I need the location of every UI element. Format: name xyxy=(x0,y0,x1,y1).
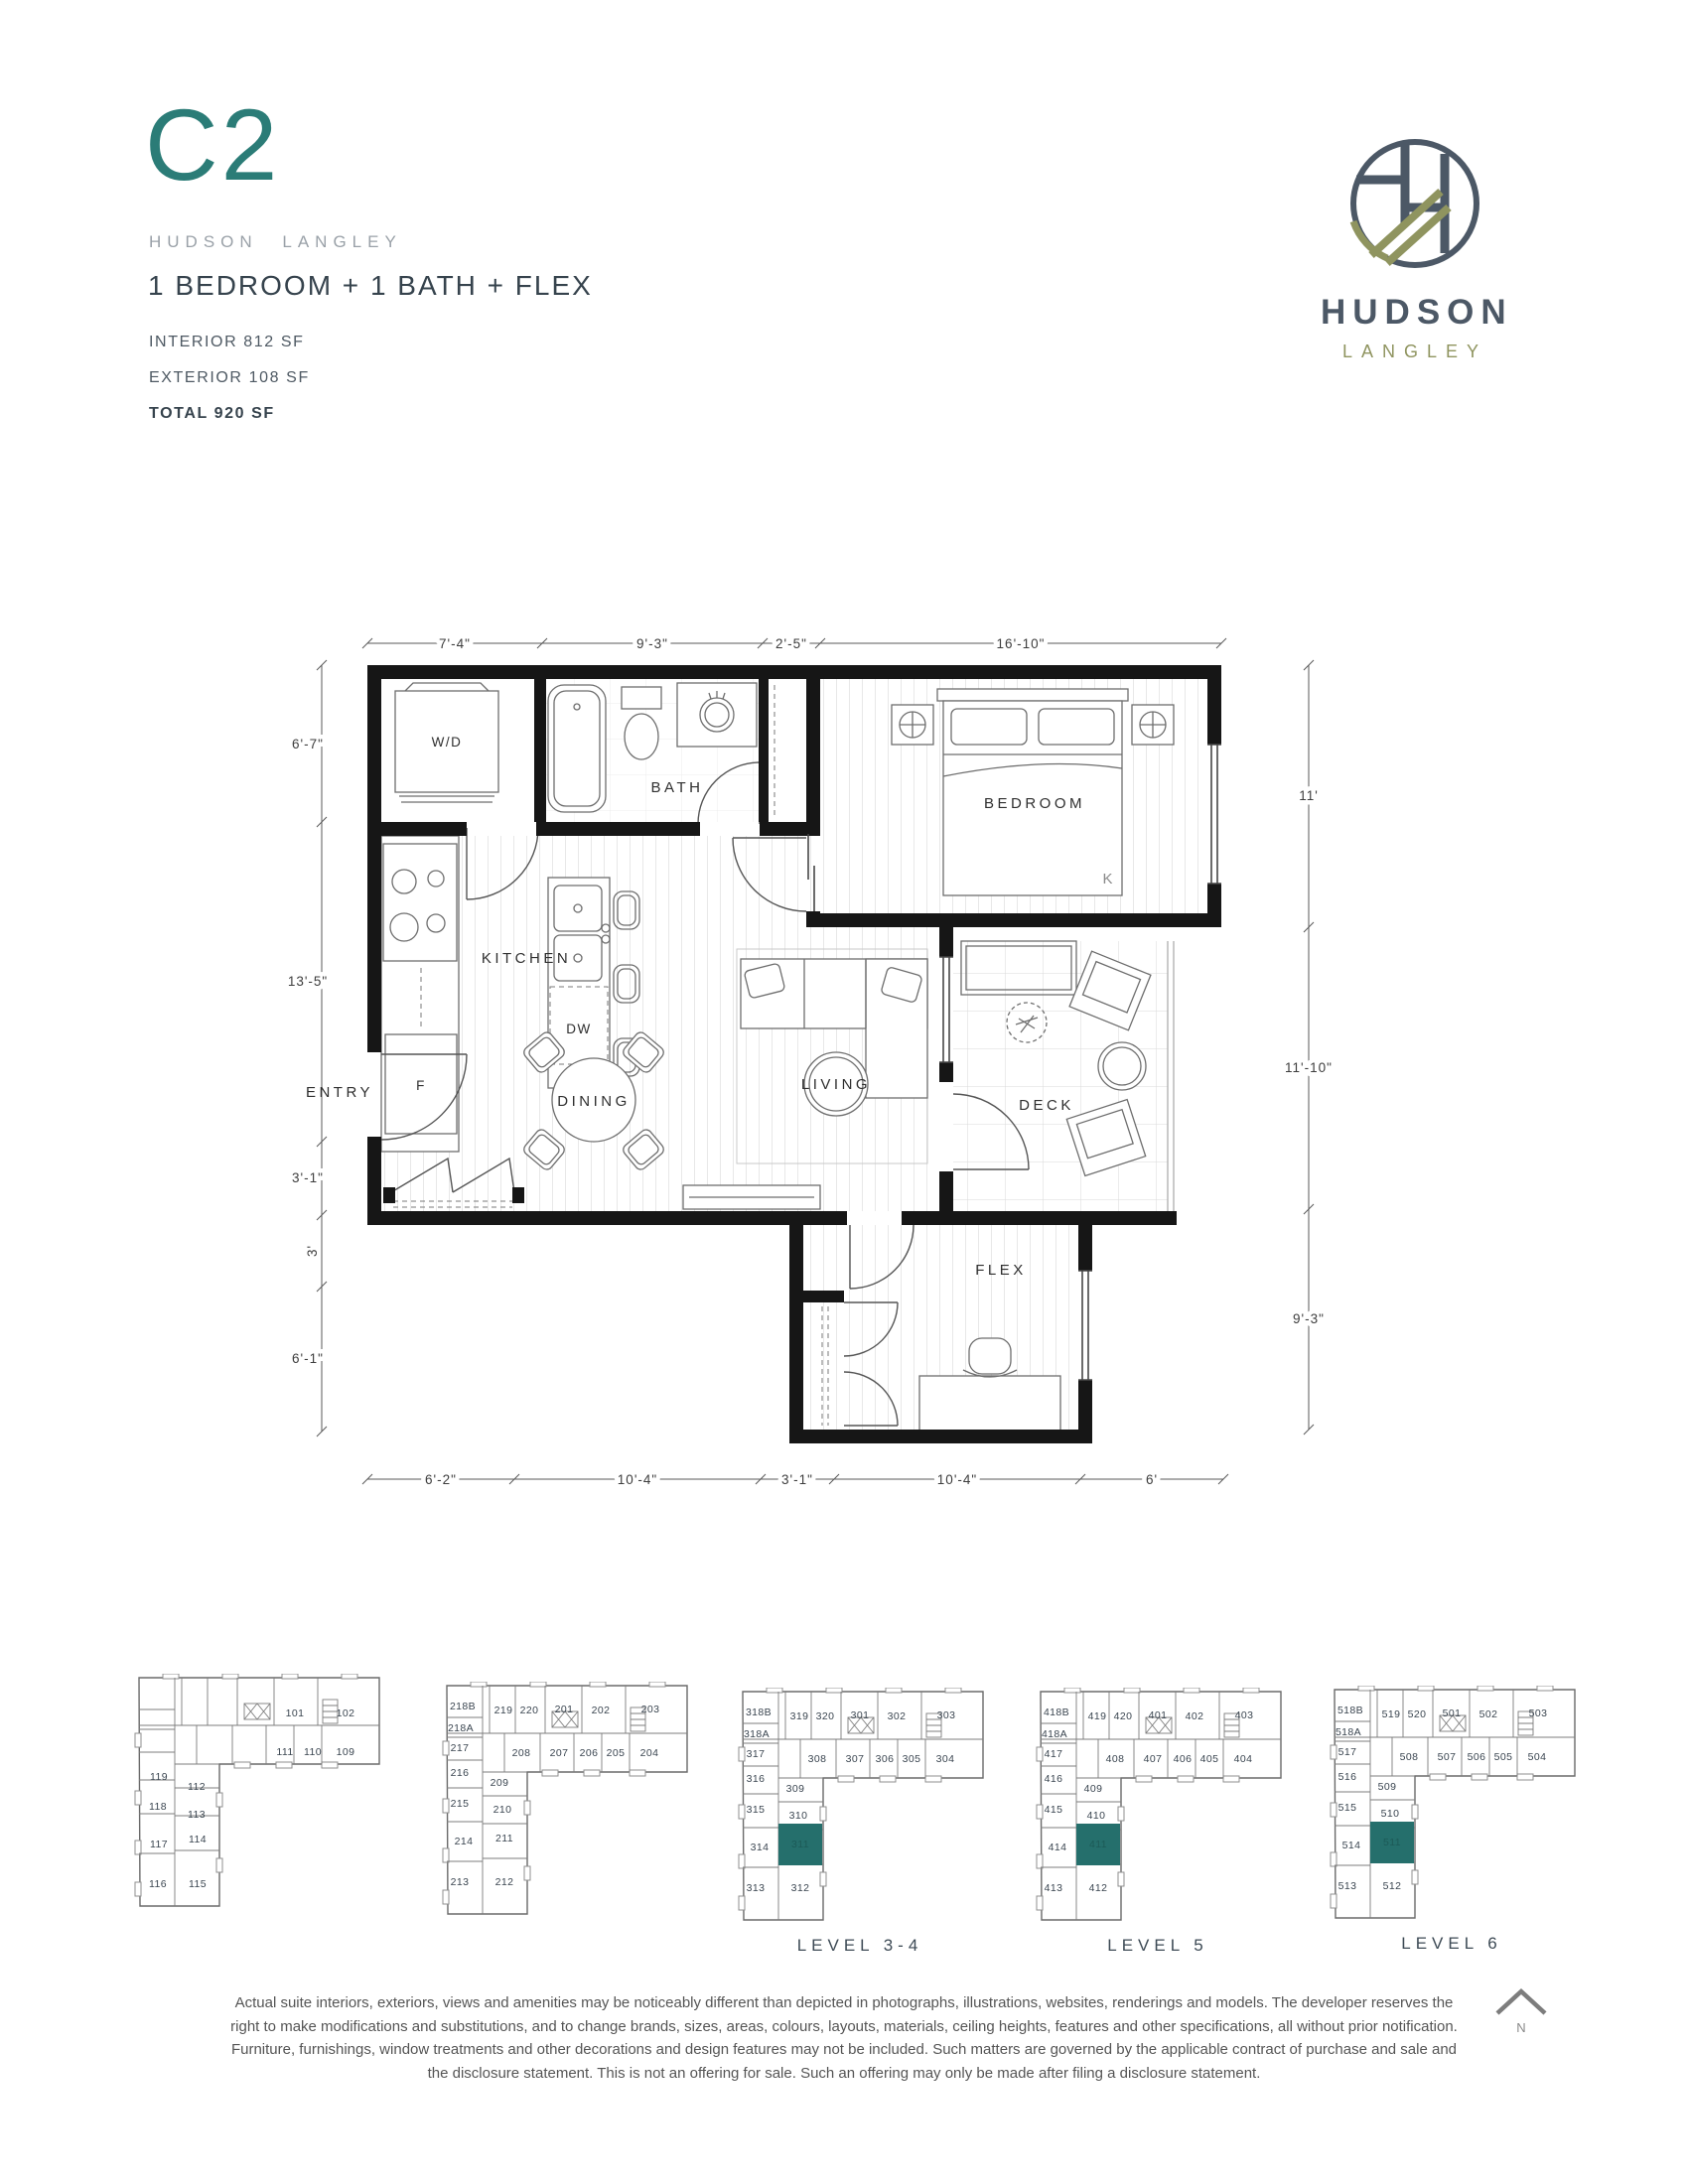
keyplan-units: 518B519520501502503518A51751650850750650… xyxy=(1323,1686,1581,1919)
dim-right-3: 9'-3" xyxy=(1293,1311,1325,1326)
logo-monogram-icon xyxy=(1340,129,1489,278)
keyplan-unit-number: 212 xyxy=(495,1876,514,1888)
keyplan-unit-number: 116 xyxy=(149,1878,167,1890)
keyplan-unit-number: 518A xyxy=(1336,1726,1361,1738)
keyplan-unit-number: 315 xyxy=(747,1804,766,1816)
keyplan-unit-number: 408 xyxy=(1106,1753,1125,1765)
keyplan-unit-number: 509 xyxy=(1378,1781,1397,1793)
keyplan-unit-number: 319 xyxy=(790,1710,809,1722)
keyplan-unit-number: 301 xyxy=(851,1709,870,1721)
keyplan-unit-number: 420 xyxy=(1114,1710,1133,1722)
keyplan-unit-number: 308 xyxy=(808,1753,827,1765)
keyplan-unit-number: 307 xyxy=(846,1753,865,1765)
disclaimer-line: Furniture, furnishings, window treatment… xyxy=(169,2038,1519,2062)
dim-bottom-2: 10'-4" xyxy=(618,1472,657,1487)
keyplan-unit-number: 303 xyxy=(937,1709,956,1721)
dim-top-4: 16'-10" xyxy=(997,636,1046,651)
keyplan-unit-number: 213 xyxy=(451,1876,470,1888)
keyplan-unit-number: 515 xyxy=(1338,1802,1357,1814)
keyplan-unit-number: 109 xyxy=(337,1746,355,1758)
label-dishwasher: DW xyxy=(566,1022,592,1036)
keyplan-unit-number: 208 xyxy=(512,1747,531,1759)
keyplan-unit-number: 520 xyxy=(1408,1708,1427,1720)
dim-top-2: 9'-3" xyxy=(636,636,668,651)
keyplan-unit-number: 304 xyxy=(936,1753,955,1765)
keyplan-unit-number: 211 xyxy=(495,1833,513,1844)
keyplan-unit-number: 114 xyxy=(189,1834,207,1845)
keyplan-unit-number: 410 xyxy=(1087,1810,1106,1822)
keyplan-unit-number: 318B xyxy=(746,1706,772,1718)
keyplan-unit-number: 512 xyxy=(1383,1880,1402,1892)
label-kitchen: KITCHEN xyxy=(482,950,571,967)
keyplan-unit-number: 406 xyxy=(1174,1753,1193,1765)
dim-bottom-1: 6'-2" xyxy=(425,1472,457,1487)
keyplan-unit-number: 413 xyxy=(1045,1882,1063,1894)
keyplan-unit-number: 302 xyxy=(888,1710,907,1722)
keyplan-units: 318B319320301302303318A31730830730630530… xyxy=(731,1688,989,1921)
keyplan-unit-number: 506 xyxy=(1468,1751,1486,1763)
dim-left-3: 3'-1" xyxy=(292,1170,324,1185)
keyplan-unit-number: 502 xyxy=(1479,1708,1498,1720)
keyplan-unit-number: 305 xyxy=(903,1753,921,1765)
hudson-langley-logo: HUDSON LANGLEY xyxy=(1321,129,1509,362)
label-dining: DINING xyxy=(557,1093,631,1110)
keyplan-unit-number: 513 xyxy=(1338,1880,1357,1892)
north-indicator: N xyxy=(1487,1983,1555,2035)
keyplan-unit-number: 117 xyxy=(150,1839,168,1850)
keyplan-unit-number: 517 xyxy=(1338,1746,1357,1758)
keyplan-unit-number: 118 xyxy=(149,1801,167,1813)
label-living: LIVING xyxy=(801,1076,871,1093)
keyplan-unit-number: 418B xyxy=(1044,1706,1069,1718)
label-washer-dryer: W/D xyxy=(432,735,463,750)
label-king-bed: K xyxy=(1102,871,1113,887)
label-deck: DECK xyxy=(1019,1097,1074,1114)
keyplan-unit-number: 314 xyxy=(751,1842,770,1853)
keyplan-unit-number: 206 xyxy=(580,1747,599,1759)
keyplan-unit-number: 205 xyxy=(607,1747,626,1759)
keyplan-level-3-4: 318B319320301302303318A31730830730630530… xyxy=(731,1688,989,1921)
keyplan-unit-number: 409 xyxy=(1084,1783,1103,1795)
keyplan-unit-number: 316 xyxy=(747,1773,766,1785)
disclaimer: Actual suite interiors, exteriors, views… xyxy=(169,1991,1519,2085)
dim-right-2: 11'-10" xyxy=(1285,1060,1333,1075)
dim-bottom-5: 6' xyxy=(1146,1472,1158,1487)
keyplan-unit-number: 514 xyxy=(1342,1840,1361,1851)
keyplan-unit-number: 110 xyxy=(304,1746,322,1758)
keyplan-unit-number: 115 xyxy=(189,1878,207,1890)
keyplan-unit-number: 313 xyxy=(747,1882,766,1894)
keyplan-unit-number: 507 xyxy=(1438,1751,1457,1763)
keyplan-unit-number: 518B xyxy=(1337,1705,1363,1716)
keyplan-unit-number: 503 xyxy=(1529,1707,1548,1719)
keyplan-unit-number: 201 xyxy=(555,1704,574,1715)
keyplan-unit-number: 218A xyxy=(448,1722,474,1734)
keyplan-units: 101102111110109119112118113117114116115 xyxy=(127,1674,385,1907)
keyplan-unit-number: 209 xyxy=(491,1777,509,1789)
dim-bottom-3: 3'-1" xyxy=(781,1472,813,1487)
keyplan-units: 218B219220201202203218A21720820720620520… xyxy=(435,1682,693,1915)
floor-plan: 7'-4" 9'-3" 2'-5" 16'-10" 6'-7" 13'-5" 3… xyxy=(288,596,1340,1509)
keyplan-unit-number: 516 xyxy=(1338,1771,1357,1783)
dim-top-1: 7'-4" xyxy=(439,636,471,651)
keyplan-unit-number: 216 xyxy=(451,1767,470,1779)
keyplan-unit-number: 318A xyxy=(744,1728,770,1740)
keyplan-level-label: LEVEL 5 xyxy=(1029,1936,1287,1956)
label-bath: BATH xyxy=(651,779,704,796)
keyplan-unit-number: 519 xyxy=(1382,1708,1401,1720)
label-entry: ENTRY xyxy=(306,1084,373,1101)
dim-left-4: 3' xyxy=(305,1245,320,1257)
disclaimer-line: the disclosure statement. This is not an… xyxy=(169,2062,1519,2086)
label-bedroom: BEDROOM xyxy=(984,795,1085,812)
dim-top-3: 2'-5" xyxy=(775,636,807,651)
keyplan-unit-number: 501 xyxy=(1443,1707,1462,1719)
keyplan-unit-number: 215 xyxy=(451,1798,470,1810)
keyplan-unit-number: 306 xyxy=(876,1753,895,1765)
keyplan-unit-number: 407 xyxy=(1144,1753,1163,1765)
keyplan-unit-number: 101 xyxy=(286,1707,305,1719)
keyplan-unit-number: 210 xyxy=(493,1804,512,1816)
keyplan-level-1: 101102111110109119112118113117114116115 xyxy=(127,1674,385,1907)
keyplan-unit-number: 202 xyxy=(592,1705,611,1716)
keyplan-unit-number: 415 xyxy=(1045,1804,1063,1816)
logo-wordmark: HUDSON xyxy=(1321,293,1509,333)
suite-type-title: 1 BEDROOM + 1 BATH + FLEX xyxy=(148,270,593,302)
keyplan-unit-number: 220 xyxy=(520,1705,539,1716)
keyplan-unit-number: 416 xyxy=(1045,1773,1063,1785)
keyplan-unit-number: 320 xyxy=(816,1710,835,1722)
keyplan-unit-number: 405 xyxy=(1200,1753,1219,1765)
keyplan-units: 418B419420401402403418A41740840740640540… xyxy=(1029,1688,1287,1921)
keyplan-unit-number: 111 xyxy=(276,1746,293,1758)
keyplan-unit-number: 204 xyxy=(640,1747,659,1759)
north-label: N xyxy=(1487,2020,1555,2035)
disclaimer-line: Actual suite interiors, exteriors, views… xyxy=(169,1991,1519,2015)
keyplan-unit-number: 207 xyxy=(550,1747,569,1759)
label-flex: FLEX xyxy=(975,1262,1027,1279)
keyplan-unit-number: 214 xyxy=(455,1836,474,1847)
keyplan-unit-number: 404 xyxy=(1234,1753,1253,1765)
disclaimer-line: right to make modifications and substitu… xyxy=(169,2015,1519,2039)
project-name: HUDSON LANGLEY xyxy=(149,232,402,252)
keyplan-level-5: 418B419420401402403418A41740840740640540… xyxy=(1029,1688,1287,1921)
keyplan-level-6: 518B519520501502503518A51751650850750650… xyxy=(1323,1686,1581,1919)
keyplan-level-label: LEVEL 6 xyxy=(1323,1934,1581,1954)
keyplan-unit-number: 402 xyxy=(1186,1710,1204,1722)
plan-code: C2 xyxy=(145,87,280,204)
total-area: TOTAL 920 SF xyxy=(149,405,275,423)
keyplan-unit-number: 112 xyxy=(188,1781,206,1793)
keyplan-unit-number: 312 xyxy=(791,1882,810,1894)
dim-left-2: 13'-5" xyxy=(288,974,328,989)
logo-wordmark-sub: LANGLEY xyxy=(1321,341,1509,362)
dim-left-1: 6'-7" xyxy=(292,737,324,751)
keyplan-unit-number: 317 xyxy=(747,1748,766,1760)
dim-bottom-4: 10'-4" xyxy=(937,1472,977,1487)
keyplan-unit-number: 217 xyxy=(451,1742,470,1754)
keyplan-unit-number: 505 xyxy=(1494,1751,1513,1763)
keyplan-unit-number: 218B xyxy=(450,1701,476,1712)
keyplan-unit-number: 311 xyxy=(778,1824,822,1865)
north-arrow-icon xyxy=(1489,1983,1553,2017)
keyplan-unit-number: 504 xyxy=(1528,1751,1547,1763)
keyplan-unit-number: 113 xyxy=(188,1809,206,1821)
label-fridge: F xyxy=(416,1078,426,1093)
keyplan-unit-number: 401 xyxy=(1149,1709,1168,1721)
keyplan-unit-number: 309 xyxy=(786,1783,805,1795)
keyplan-unit-number: 418A xyxy=(1042,1728,1067,1740)
keyplan-level-2: 218B219220201202203218A21720820720620520… xyxy=(435,1682,693,1915)
keyplan-unit-number: 203 xyxy=(641,1704,660,1715)
exterior-area: EXTERIOR 108 SF xyxy=(149,369,310,387)
keyplan-unit-number: 419 xyxy=(1088,1710,1107,1722)
keyplan-unit-number: 411 xyxy=(1076,1824,1120,1865)
keyplan-unit-number: 412 xyxy=(1089,1882,1108,1894)
keyplan-unit-number: 414 xyxy=(1049,1842,1067,1853)
keyplan-unit-number: 102 xyxy=(337,1707,355,1719)
keyplan-unit-number: 511 xyxy=(1370,1822,1414,1863)
dim-right-1: 11' xyxy=(1299,788,1319,803)
keyplan-level-label: LEVEL 3-4 xyxy=(731,1936,989,1956)
keyplan-unit-number: 510 xyxy=(1381,1808,1400,1820)
keyplan-unit-number: 508 xyxy=(1400,1751,1419,1763)
keyplan-unit-number: 403 xyxy=(1235,1709,1254,1721)
keyplan-unit-number: 417 xyxy=(1045,1748,1063,1760)
interior-area: INTERIOR 812 SF xyxy=(149,334,304,351)
keyplan-unit-number: 310 xyxy=(789,1810,808,1822)
dim-left-5: 6'-1" xyxy=(292,1351,324,1366)
keyplan-unit-number: 119 xyxy=(150,1771,168,1783)
keyplan-unit-number: 219 xyxy=(494,1705,513,1716)
